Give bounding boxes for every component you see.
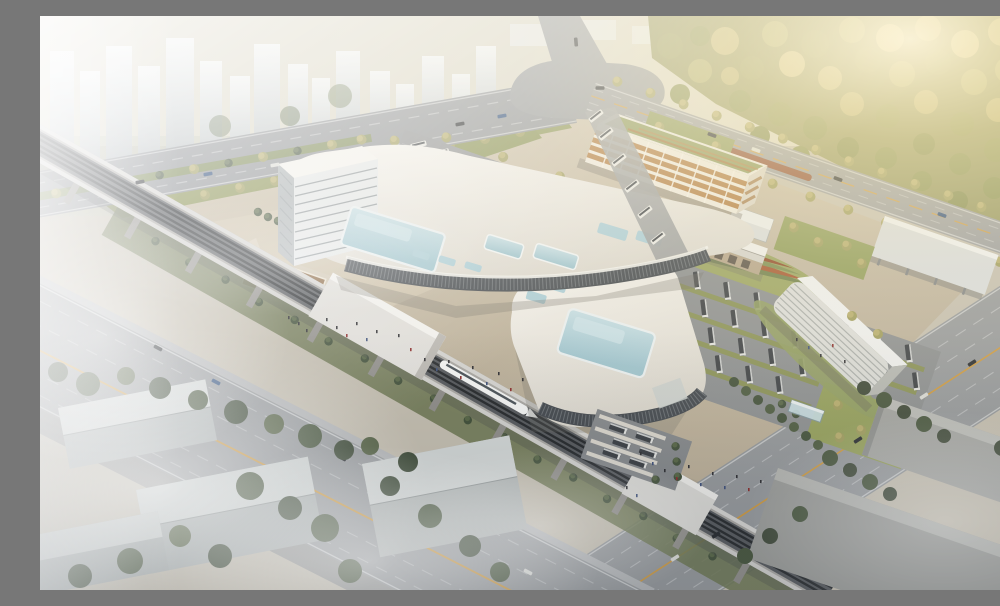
rendering-canvas (40, 16, 1000, 590)
aerial-rendering (40, 16, 1000, 590)
atmosphere (40, 16, 1000, 590)
